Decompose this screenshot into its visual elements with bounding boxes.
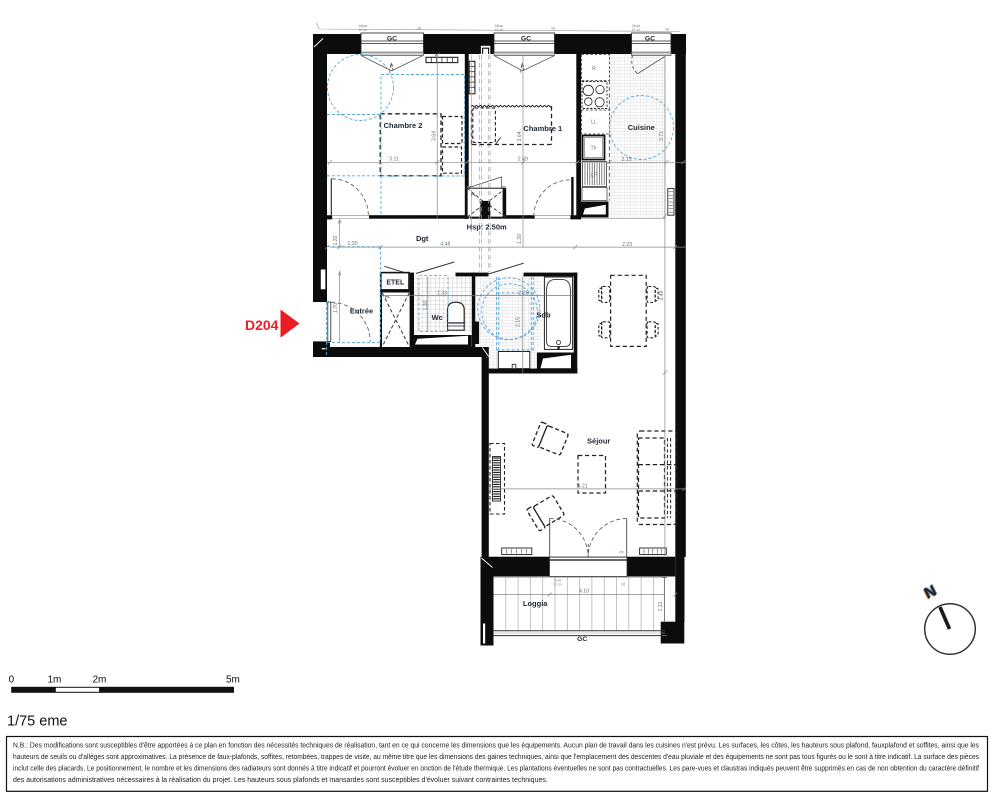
- svg-text:GC: GC: [521, 36, 531, 43]
- svg-text:3.11: 3.11: [389, 157, 399, 163]
- svg-text:Séjour: Séjour: [587, 437, 610, 446]
- svg-text:hauteurs de seuils ou d'allège: hauteurs de seuils ou d'allèges sont app…: [13, 754, 979, 761]
- svg-text:VB: VB: [551, 27, 555, 31]
- svg-text:2m: 2m: [93, 675, 107, 686]
- svg-text:2.25: 2.25: [519, 290, 529, 296]
- svg-text:LL: LL: [591, 120, 597, 126]
- svg-text:1.31: 1.31: [658, 601, 664, 611]
- svg-text:Cuisine: Cuisine: [628, 123, 655, 132]
- svg-text:Chambre 1: Chambre 1: [523, 124, 562, 133]
- svg-text:D204: D204: [245, 317, 279, 333]
- svg-text:2.15: 2.15: [515, 317, 521, 327]
- svg-text:VB: VB: [665, 28, 669, 32]
- svg-text:GC: GC: [577, 636, 587, 643]
- svg-text:5m: 5m: [226, 675, 240, 686]
- svg-text:N.B.: Des modifications sont s: N.B.: Des modifications sont susceptible…: [13, 742, 979, 749]
- svg-text:LF: LF: [591, 173, 597, 179]
- svg-text:10 cm: 10 cm: [632, 28, 641, 32]
- svg-text:GC: GC: [645, 36, 655, 43]
- svg-text:2.23: 2.23: [622, 242, 632, 248]
- svg-text:Dgt: Dgt: [416, 234, 429, 243]
- svg-text:des autorisations administrati: des autorisations administratives nécess…: [13, 777, 548, 784]
- svg-text:Loggia: Loggia: [523, 599, 548, 608]
- svg-text:inclut celle des placards. Le: inclut celle des placards. Le positionne…: [13, 765, 979, 772]
- svg-text:4.10: 4.10: [579, 589, 589, 595]
- svg-text:Th: Th: [590, 146, 596, 152]
- svg-text:3.64: 3.64: [431, 131, 437, 141]
- svg-text:VB: VB: [621, 582, 625, 586]
- svg-text:GC: GC: [387, 36, 397, 43]
- svg-text:1.30: 1.30: [423, 300, 429, 310]
- svg-text:1,20: 1,20: [347, 241, 357, 247]
- svg-text:Entrée: Entrée: [350, 306, 373, 315]
- svg-text:2.15: 2.15: [621, 157, 631, 163]
- svg-text:1.20: 1.20: [333, 235, 339, 245]
- svg-text:3.49: 3.49: [659, 290, 665, 300]
- svg-text:10 cm: 10 cm: [553, 582, 562, 586]
- svg-text:10 cm: 10 cm: [359, 28, 368, 32]
- svg-text:PL: PL: [471, 192, 477, 197]
- svg-text:Wc: Wc: [432, 313, 443, 322]
- svg-text:PF: PF: [619, 550, 624, 554]
- svg-text:3.64: 3.64: [517, 131, 523, 141]
- svg-text:Sdb: Sdb: [536, 311, 551, 320]
- svg-text:4.21: 4.21: [578, 483, 588, 489]
- svg-text:3.71: 3.71: [659, 131, 665, 141]
- svg-text:0: 0: [9, 675, 15, 686]
- svg-text:4.48: 4.48: [440, 241, 450, 247]
- svg-text:R: R: [592, 66, 596, 72]
- svg-text:1.70: 1.70: [333, 303, 339, 313]
- svg-text:1/75 eme: 1/75 eme: [7, 714, 67, 730]
- svg-text:10 cm: 10 cm: [495, 28, 504, 32]
- svg-text:1m: 1m: [48, 675, 62, 686]
- svg-text:VB: VB: [417, 27, 421, 31]
- svg-text:ETEL: ETEL: [386, 280, 405, 287]
- svg-text:Chambre 2: Chambre 2: [384, 121, 423, 130]
- svg-text:Hsp: 2.50m: Hsp: 2.50m: [467, 222, 507, 231]
- svg-text:1.20: 1.20: [517, 234, 523, 244]
- svg-text:1.33: 1.33: [437, 290, 447, 296]
